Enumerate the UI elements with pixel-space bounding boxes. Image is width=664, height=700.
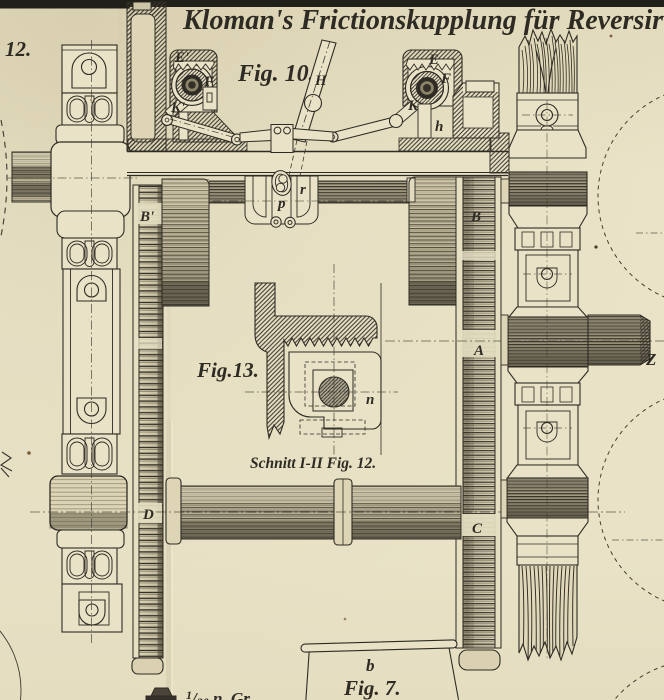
svg-text:D: D — [142, 507, 154, 523]
svg-text:r: r — [300, 182, 306, 198]
svg-text:b: b — [366, 656, 375, 675]
svg-text:Z: Z — [645, 350, 656, 369]
svg-text:p: p — [276, 196, 286, 212]
svg-text:E: E — [428, 52, 439, 68]
svg-text:A: A — [473, 343, 484, 359]
svg-text:Schnitt I-II Fig. 12.: Schnitt I-II Fig. 12. — [250, 455, 376, 472]
svg-text:B': B' — [139, 209, 154, 225]
svg-text:F: F — [440, 71, 451, 87]
svg-text:H: H — [314, 73, 328, 89]
svg-text:n: n — [366, 392, 374, 408]
svg-text:Kloman's Frictionskupplung für: Kloman's Frictionskupplung für Reversirw — [182, 5, 664, 36]
svg-text:F: F — [203, 74, 214, 90]
svg-text:12.: 12. — [5, 37, 31, 61]
svg-text:Fig.13.: Fig.13. — [196, 358, 259, 382]
svg-text:Fig. 7.: Fig. 7. — [343, 676, 401, 700]
svg-text:K': K' — [170, 100, 185, 116]
svg-text:K: K — [407, 98, 419, 114]
svg-text:C: C — [472, 521, 483, 537]
svg-text:B: B — [470, 209, 481, 225]
svg-text:1/20 n. Gr.: 1/20 n. Gr. — [186, 688, 253, 700]
svg-text:h: h — [435, 119, 443, 135]
svg-text:Fig. 10.: Fig. 10. — [237, 61, 315, 87]
svg-text:E': E' — [174, 50, 189, 66]
